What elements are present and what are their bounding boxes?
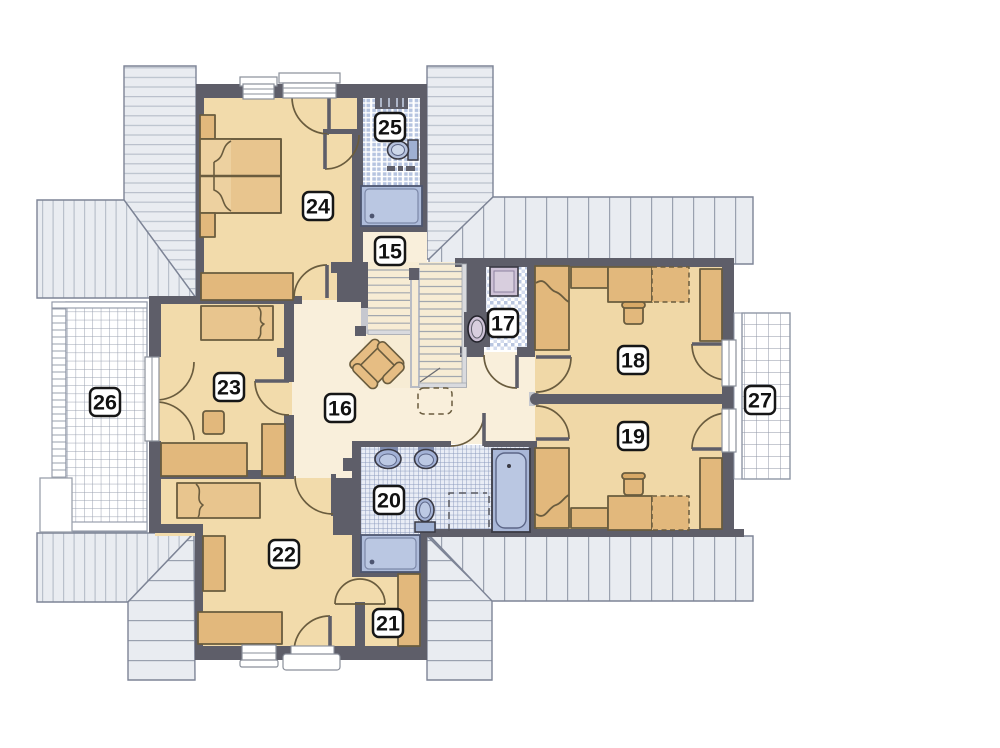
svg-text:19: 19 [621,425,645,449]
svg-text:18: 18 [621,349,645,373]
svg-text:15: 15 [378,240,402,264]
svg-text:24: 24 [306,195,330,219]
svg-text:17: 17 [491,312,515,336]
svg-text:27: 27 [748,389,772,413]
svg-text:20: 20 [377,489,401,513]
svg-text:23: 23 [217,376,241,400]
svg-text:26: 26 [93,391,117,415]
svg-text:25: 25 [378,116,402,140]
svg-text:21: 21 [376,612,400,636]
svg-text:16: 16 [328,397,352,421]
svg-text:22: 22 [272,543,296,567]
